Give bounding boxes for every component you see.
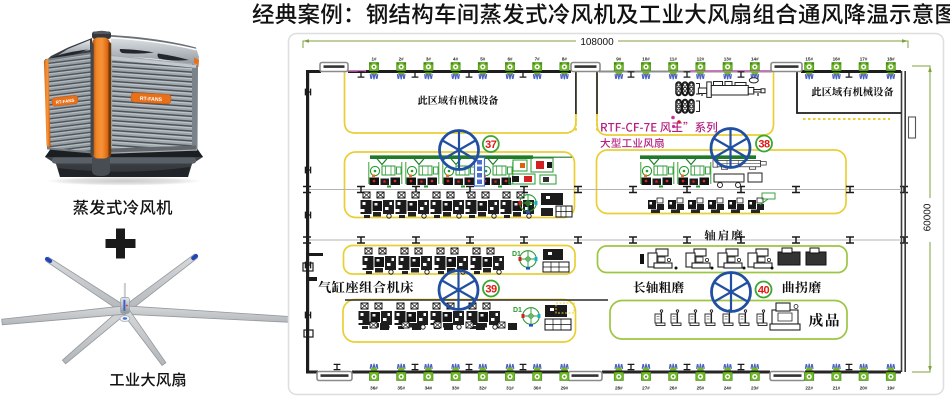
svg-text:23#: 23#	[751, 386, 759, 391]
svg-text:33#: 33#	[452, 386, 460, 391]
svg-text:7#: 7#	[535, 57, 541, 62]
svg-text:18#: 18#	[887, 57, 895, 62]
svg-text:17#: 17#	[860, 57, 868, 62]
svg-text:27#: 27#	[642, 386, 650, 391]
svg-text:3#: 3#	[426, 57, 432, 62]
svg-text:12#: 12#	[697, 57, 705, 62]
svg-text:36#: 36#	[370, 386, 378, 391]
svg-text:RT-FANS: RT-FANS	[140, 96, 163, 103]
svg-text:10#: 10#	[642, 57, 650, 62]
svg-text:60000: 60000	[923, 203, 934, 231]
svg-text:38: 38	[758, 138, 770, 150]
svg-text:31#: 31#	[506, 386, 514, 391]
svg-text:19#: 19#	[887, 386, 895, 391]
svg-text:29#: 29#	[561, 386, 569, 391]
svg-text:37: 37	[485, 139, 497, 151]
svg-text:D1: D1	[513, 307, 522, 314]
svg-text:40: 40	[758, 284, 770, 296]
svg-text:D1: D1	[512, 251, 521, 258]
svg-text:4#: 4#	[453, 57, 459, 62]
svg-text:5#: 5#	[480, 57, 486, 62]
svg-text:2#: 2#	[399, 57, 405, 62]
svg-text:15#: 15#	[805, 57, 813, 62]
svg-text:35#: 35#	[397, 386, 405, 391]
svg-text:9#: 9#	[616, 57, 622, 62]
svg-text:24#: 24#	[724, 386, 732, 391]
svg-text:30#: 30#	[533, 386, 541, 391]
svg-text:26#: 26#	[669, 386, 677, 391]
svg-text:14#: 14#	[751, 57, 759, 62]
svg-text:16#: 16#	[833, 57, 841, 62]
svg-text:34#: 34#	[425, 386, 433, 391]
svg-text:32#: 32#	[479, 386, 487, 391]
svg-text:1#: 1#	[371, 57, 377, 62]
svg-text:11#: 11#	[669, 57, 677, 62]
svg-text:20#: 20#	[860, 386, 868, 391]
svg-text:39: 39	[485, 283, 497, 295]
svg-text:21#: 21#	[833, 386, 841, 391]
svg-text:28#: 28#	[615, 386, 623, 391]
svg-text:6#: 6#	[507, 57, 513, 62]
svg-text:108000: 108000	[580, 37, 614, 48]
svg-text:8#: 8#	[562, 57, 568, 62]
svg-text:25#: 25#	[697, 386, 705, 391]
svg-text:13#: 13#	[724, 57, 732, 62]
svg-text:22#: 22#	[805, 386, 813, 391]
